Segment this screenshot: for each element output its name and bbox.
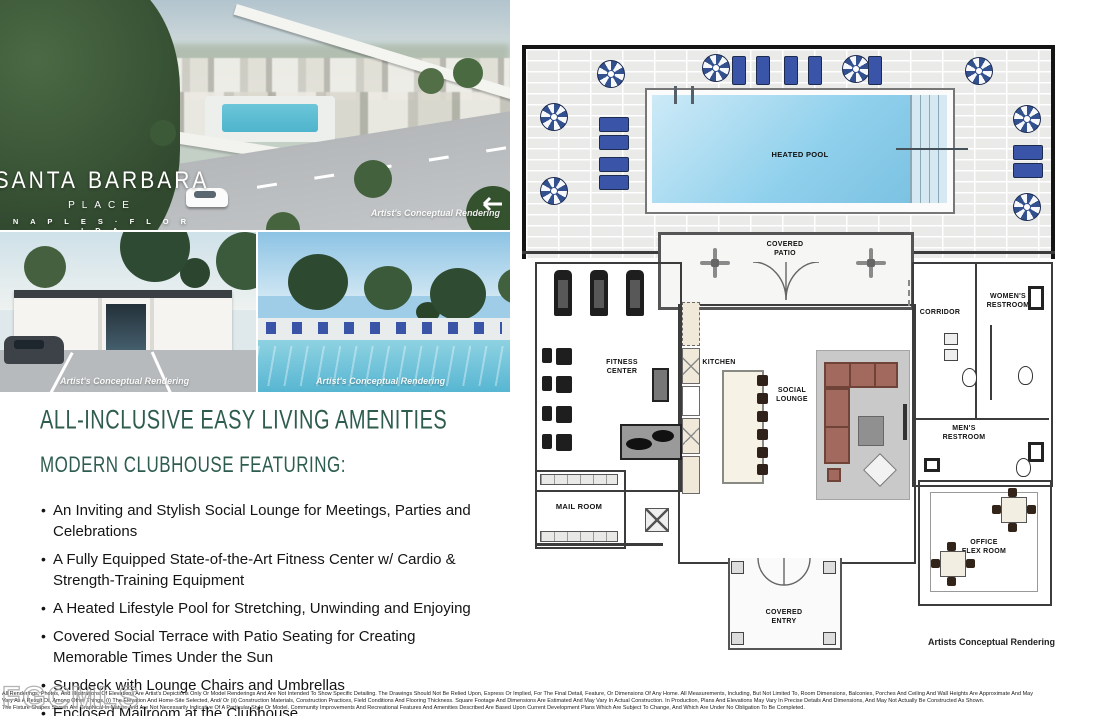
lounge-chair-icon bbox=[599, 175, 629, 190]
kitchen-appliance bbox=[682, 386, 700, 416]
mls-watermark: FGCMLS bbox=[2, 681, 141, 715]
bar-stool-icon bbox=[757, 464, 768, 475]
porch-column bbox=[823, 561, 836, 574]
wall-stall-divider bbox=[990, 325, 992, 400]
kitchen-cabinet bbox=[682, 348, 700, 384]
weight-machine-icon bbox=[542, 348, 576, 365]
chair-icon bbox=[947, 577, 956, 586]
corridor-seat bbox=[944, 349, 958, 361]
photo-left-column bbox=[98, 298, 102, 352]
photo-right-palms bbox=[288, 254, 348, 310]
mailboxes bbox=[540, 531, 618, 542]
lounge-chair-icon bbox=[732, 56, 746, 85]
wall-corridor-divider bbox=[975, 264, 977, 418]
umbrella-icon bbox=[597, 60, 625, 88]
weight-machine-icon bbox=[542, 376, 576, 393]
arrow-left-icon bbox=[476, 196, 502, 212]
ceiling-fan-icon bbox=[856, 248, 886, 278]
corridor-opening bbox=[908, 280, 910, 306]
amenities-title: ALL-INCLUSIVE EASY LIVING AMENITIES bbox=[40, 406, 447, 436]
porch-column bbox=[823, 632, 836, 645]
tv-icon bbox=[903, 404, 907, 440]
wall-restroom-divider bbox=[914, 418, 1049, 420]
umbrella-icon bbox=[1013, 193, 1041, 221]
photo-left-entry-glass bbox=[106, 304, 146, 352]
porch-column bbox=[731, 561, 744, 574]
hero-tree-cluster bbox=[150, 120, 176, 146]
brand-location: N A P L E S · F L O R I D A bbox=[12, 217, 192, 230]
deck-wall-bottom-right bbox=[908, 251, 1055, 254]
bar-stool-icon bbox=[757, 447, 768, 458]
treadmill-icon bbox=[626, 270, 644, 316]
photo-right-pool-deck bbox=[258, 318, 510, 340]
umbrella-icon bbox=[702, 54, 730, 82]
photo-left-column bbox=[150, 298, 154, 352]
chair-icon bbox=[947, 542, 956, 551]
toilet-icon bbox=[1018, 366, 1033, 385]
sink-icon bbox=[1028, 442, 1044, 462]
room-label-fitness-center: FITNESS CENTER bbox=[598, 358, 646, 376]
photo-left-roofline bbox=[14, 290, 232, 298]
toilet-icon bbox=[962, 368, 977, 387]
brand-logo: SANTA BARBARA PLACE N A P L E S · F L O … bbox=[12, 164, 192, 230]
corridor-seat bbox=[944, 333, 958, 345]
sofa-section-horizontal bbox=[824, 362, 898, 388]
room-label-mens-restroom: MEN'S RESTROOM bbox=[938, 424, 990, 442]
amenity-item: A Heated Lifestyle Pool for Stretching, … bbox=[40, 598, 492, 619]
ceiling-fan-icon bbox=[700, 248, 730, 278]
kitchen-counter bbox=[682, 456, 700, 494]
patio-french-doors bbox=[752, 262, 820, 302]
umbrella-icon bbox=[540, 103, 568, 131]
hero-community-pool bbox=[222, 104, 318, 132]
coffee-table bbox=[858, 416, 884, 446]
lounge-chair-icon bbox=[599, 135, 629, 150]
room-label-covered-patio: COVERED PATIO bbox=[760, 240, 810, 258]
chair-icon bbox=[966, 559, 975, 568]
brand-name-left: SANTA bbox=[0, 167, 78, 195]
lounge-chair-icon bbox=[784, 56, 798, 85]
amenity-item: A Fully Equipped State-of-the-Art Fitnes… bbox=[40, 549, 492, 591]
lounge-chair-icon bbox=[599, 157, 629, 172]
legal-disclaimer: All Renderings, Photos, And Illustration… bbox=[2, 691, 1096, 712]
photo-right-caption: Artist's Conceptual Rendering bbox=[316, 376, 445, 386]
disclaimer-line: Vary As A Result Of, Among Other Things,… bbox=[2, 698, 1096, 705]
amenity-item: An Inviting and Stylish Social Lounge fo… bbox=[40, 500, 492, 542]
bar-stool-icon bbox=[757, 411, 768, 422]
kitchen-upper-cabinet bbox=[682, 302, 700, 346]
umbrella-icon bbox=[965, 57, 993, 85]
amenity-item: Covered Social Terrace with Patio Seatin… bbox=[40, 626, 492, 668]
lounge-chair-icon bbox=[808, 56, 822, 85]
deck-wall-bottom-left bbox=[522, 251, 658, 254]
entry-double-doors bbox=[757, 558, 811, 586]
lounge-chair-icon bbox=[1013, 145, 1043, 160]
umbrella-icon bbox=[1013, 105, 1041, 133]
hero-aerial-rendering: SANTA BARBARA PLACE N A P L E S · F L O … bbox=[0, 0, 510, 230]
toilet-icon bbox=[1016, 458, 1031, 477]
disclaimer-line: The Fixture Shapes Shown Are Graphical I… bbox=[2, 705, 1096, 712]
umbrella-icon bbox=[842, 55, 870, 83]
kitchen-cabinet bbox=[682, 418, 700, 454]
wall-bottom-left bbox=[535, 543, 663, 546]
room-label-womens-restroom: WOMEN'S RESTROOM bbox=[982, 292, 1034, 310]
photo-right-lounge-chairs bbox=[266, 322, 502, 334]
bar-stool-icon bbox=[757, 375, 768, 386]
room-label-heated-pool: HEATED POOL bbox=[740, 150, 860, 160]
lounge-chair-icon bbox=[1013, 163, 1043, 178]
sink-icon bbox=[1028, 286, 1044, 310]
disclaimer-line: All Renderings, Photos, And Illustration… bbox=[2, 691, 1096, 698]
bar-stool-icon bbox=[757, 429, 768, 440]
lounge-chair-icon bbox=[599, 117, 629, 132]
photo-left-caption: Artist's Conceptual Rendering bbox=[60, 376, 189, 386]
sofa-section-vertical bbox=[824, 388, 850, 464]
pool-handrail bbox=[896, 148, 968, 150]
pool-ladder-icon bbox=[674, 86, 694, 104]
room-label-covered-entry: COVERED ENTRY bbox=[760, 608, 808, 626]
floorplan-caption: Artists Conceptual Rendering bbox=[928, 637, 1055, 647]
sink-icon bbox=[924, 458, 940, 472]
lounge-chair-icon bbox=[756, 56, 770, 85]
flyer-canvas: SANTA BARBARA PLACE N A P L E S · F L O … bbox=[0, 0, 1098, 716]
room-label-kitchen: KITCHEN bbox=[702, 358, 736, 367]
porch-column bbox=[731, 632, 744, 645]
lounge-chair-icon bbox=[868, 56, 882, 85]
photo-pool-amenity: Artist's Conceptual Rendering bbox=[258, 232, 510, 392]
chair-icon bbox=[1027, 505, 1036, 514]
room-label-corridor: CORRIDOR bbox=[918, 308, 962, 317]
chair-icon bbox=[1008, 488, 1017, 497]
room-label-mail-room: MAIL ROOM bbox=[552, 502, 606, 512]
bar-stool-icon bbox=[757, 393, 768, 404]
weight-bench-icon bbox=[652, 368, 669, 402]
treadmill-icon bbox=[590, 270, 608, 316]
office-table bbox=[1001, 497, 1027, 523]
chair-icon bbox=[1008, 523, 1017, 532]
brand-name-right: BARBARA bbox=[88, 167, 209, 195]
room-label-social-lounge: SOCIAL LOUNGE bbox=[772, 386, 812, 404]
chair-icon bbox=[931, 559, 940, 568]
treadmill-icon bbox=[554, 270, 572, 316]
ottoman bbox=[827, 468, 841, 482]
heated-pool-water bbox=[652, 95, 910, 203]
multi-gym-icon bbox=[620, 424, 682, 460]
mailboxes bbox=[540, 474, 618, 485]
weight-machine-icon bbox=[542, 406, 576, 423]
photo-clubhouse-exterior: Artist's Conceptual Rendering bbox=[0, 232, 256, 392]
chair-icon bbox=[992, 505, 1001, 514]
office-table bbox=[940, 551, 966, 577]
umbrella-icon bbox=[540, 177, 568, 205]
weight-machine-icon bbox=[542, 434, 576, 451]
amenities-subtitle: MODERN CLUBHOUSE FEATURING: bbox=[40, 452, 346, 478]
photo-left-car bbox=[4, 336, 64, 364]
structural-column bbox=[645, 508, 669, 532]
brand-subtitle: PLACE bbox=[12, 200, 192, 211]
